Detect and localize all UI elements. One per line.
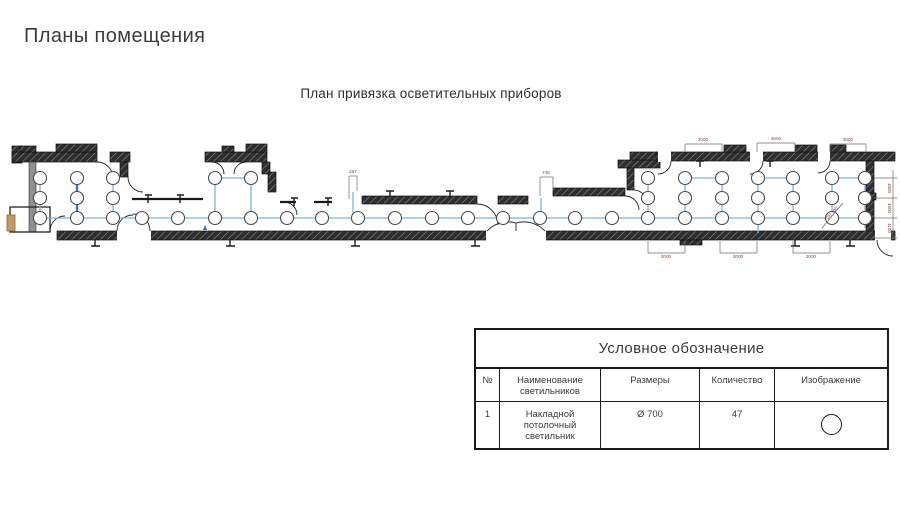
- dimension-label: 3000: [843, 137, 854, 142]
- power-entry-arrow: [203, 225, 207, 230]
- light-fixture: [569, 212, 582, 225]
- dimension-label: 3000: [698, 137, 709, 142]
- cell-size: Ø 700: [601, 402, 700, 448]
- page-title: Планы помещения: [24, 25, 205, 48]
- light-fixture: [389, 212, 402, 225]
- light-fixture: [534, 212, 547, 225]
- floor-plan-svg: 2677453000300030003000300030001800180011…: [0, 134, 900, 262]
- legend-table: Условное обозначение № Наименование свет…: [474, 328, 889, 450]
- light-fixture: [642, 172, 655, 185]
- dimension-label: 1800: [887, 183, 892, 194]
- light-fixture: [859, 172, 872, 185]
- light-fixture: [752, 172, 765, 185]
- light-fixture: [787, 212, 800, 225]
- fixture-symbol-circle-icon: [821, 414, 842, 435]
- light-fixture: [826, 172, 839, 185]
- light-fixture: [209, 212, 222, 225]
- cell-num: 1: [476, 402, 500, 448]
- light-fixture: [497, 212, 510, 225]
- plan-subtitle: План привязка осветительных приборов: [181, 86, 681, 101]
- dimension-label: 745: [542, 170, 550, 175]
- col-header-qty: Количество: [700, 369, 775, 402]
- light-fixture: [462, 212, 475, 225]
- dimension-label: 1800: [887, 203, 892, 214]
- light-fixture: [859, 192, 872, 205]
- light-fixture: [172, 212, 185, 225]
- light-fixture: [34, 192, 47, 205]
- light-fixture: [787, 192, 800, 205]
- dimension-label: 267: [349, 169, 357, 174]
- light-fixture: [107, 212, 120, 225]
- dimension-label: 3000: [661, 254, 672, 259]
- light-fixture: [352, 212, 365, 225]
- light-fixture: [679, 212, 692, 225]
- dimension-label: 3000: [733, 254, 744, 259]
- light-fixture: [787, 172, 800, 185]
- legend-title: Условное обозначение: [476, 330, 887, 369]
- light-fixture: [136, 212, 149, 225]
- cell-name: Накладной потолочный светильник: [500, 402, 601, 448]
- light-fixture: [34, 212, 47, 225]
- light-fixture: [716, 172, 729, 185]
- light-fixture: [34, 172, 47, 185]
- legend-grid: № Наименование светильников Размеры Коли…: [476, 369, 887, 448]
- light-fixture: [281, 212, 294, 225]
- light-fixture: [107, 192, 120, 205]
- light-fixture: [716, 212, 729, 225]
- light-fixture: [426, 212, 439, 225]
- light-fixture: [316, 212, 329, 225]
- cell-qty: 47: [700, 402, 775, 448]
- light-fixture: [752, 192, 765, 205]
- light-fixture: [826, 192, 839, 205]
- light-fixture: [642, 192, 655, 205]
- light-fixture: [752, 212, 765, 225]
- light-fixture: [245, 172, 258, 185]
- dimension-label: 1100: [887, 223, 892, 233]
- light-fixture: [71, 212, 84, 225]
- light-fixture: [859, 212, 872, 225]
- light-fixture: [679, 172, 692, 185]
- light-fixture: [71, 192, 84, 205]
- light-fixture: [107, 172, 120, 185]
- slide: Планы помещения План привязка осветитель…: [0, 0, 900, 506]
- light-fixture: [642, 212, 655, 225]
- col-header-name: Наименование светильников: [500, 369, 601, 402]
- dimension-label: 3000: [806, 254, 817, 259]
- light-fixture: [209, 172, 222, 185]
- light-fixture: [606, 212, 619, 225]
- dimension-label: 3000: [771, 136, 782, 141]
- light-fixture: [71, 172, 84, 185]
- light-fixture: [245, 212, 258, 225]
- light-fixture: [679, 192, 692, 205]
- col-header-image: Изображение: [775, 369, 887, 402]
- col-header-num: №: [476, 369, 500, 402]
- cell-image: [775, 402, 887, 448]
- col-header-size: Размеры: [601, 369, 700, 402]
- light-fixture: [716, 192, 729, 205]
